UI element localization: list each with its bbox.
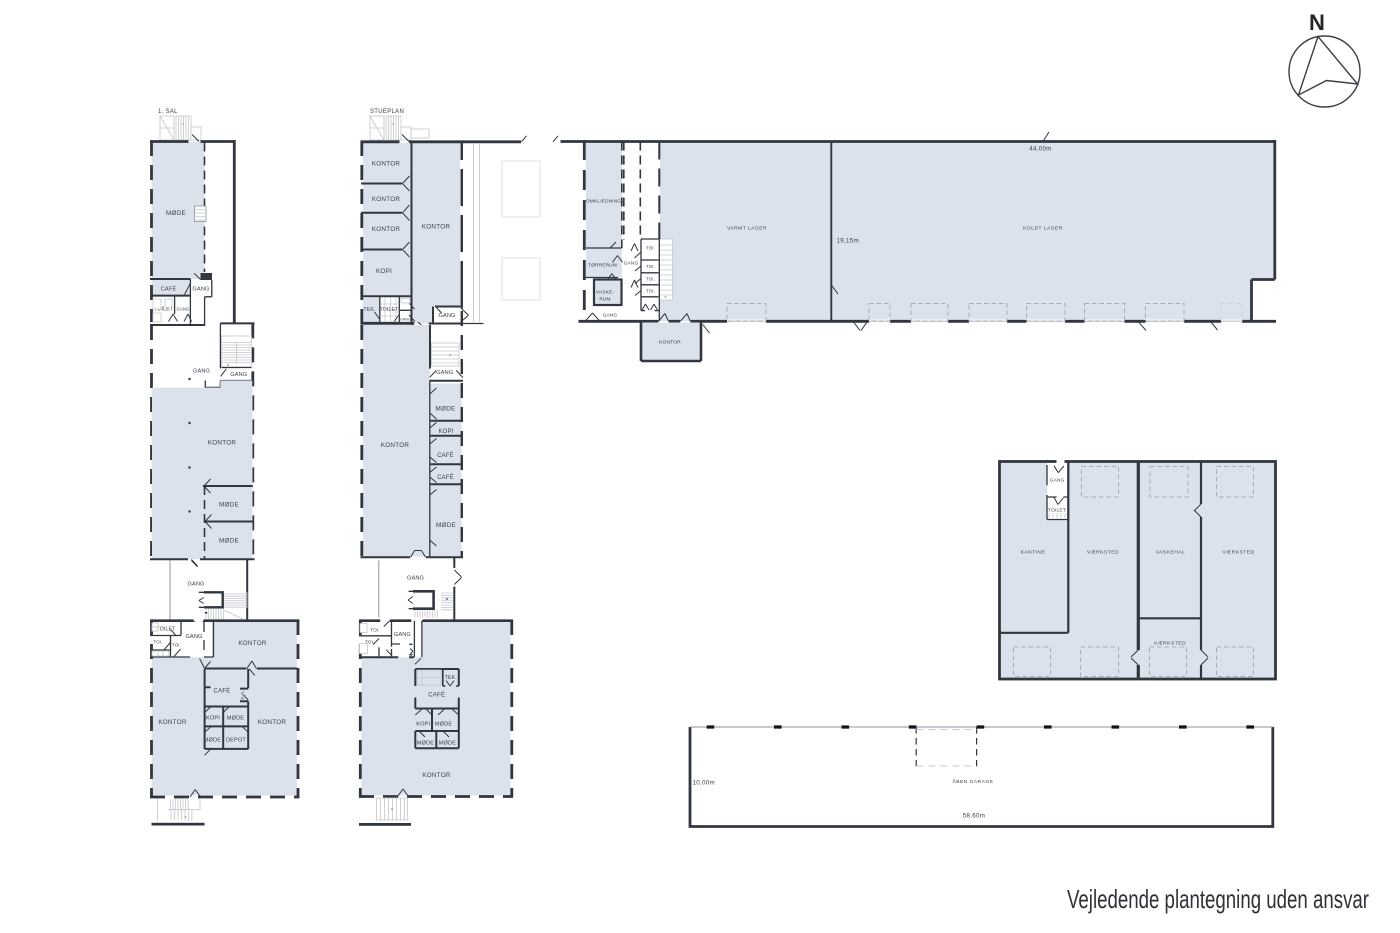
svg-text:KOPI: KOPI bbox=[416, 722, 430, 728]
svg-text:GANG: GANG bbox=[187, 582, 204, 588]
svg-text:GANG: GANG bbox=[407, 576, 424, 582]
svg-text:N: N bbox=[1309, 10, 1325, 35]
svg-text:KONTOR: KONTOR bbox=[422, 224, 451, 231]
svg-text:MØDE: MØDE bbox=[219, 538, 239, 545]
svg-text:GANG: GANG bbox=[603, 313, 618, 319]
svg-text:KONTOR: KONTOR bbox=[158, 719, 187, 726]
svg-text:GANG: GANG bbox=[1049, 478, 1064, 484]
svg-text:TOI.: TOI. bbox=[370, 628, 379, 633]
svg-text:MØDE: MØDE bbox=[227, 716, 245, 722]
svg-text:GANG: GANG bbox=[192, 287, 209, 293]
svg-text:MØDE: MØDE bbox=[417, 741, 435, 747]
svg-text:19,15m: 19,15m bbox=[837, 238, 859, 245]
svg-text:44,00m: 44,00m bbox=[1029, 146, 1051, 153]
svg-text:CAFÉ: CAFÉ bbox=[437, 474, 454, 481]
svg-text:VASKE-: VASKE- bbox=[596, 290, 614, 296]
svg-text:MØDE: MØDE bbox=[436, 522, 456, 529]
svg-text:VÆRKSTED: VÆRKSTED bbox=[1154, 641, 1186, 647]
svg-text:KONTOR: KONTOR bbox=[208, 440, 237, 447]
svg-text:KONTOR: KONTOR bbox=[381, 442, 410, 449]
svg-text:KANTINE: KANTINE bbox=[1021, 550, 1046, 556]
svg-text:GANG: GANG bbox=[438, 313, 455, 319]
svg-text:TOILET: TOILET bbox=[1048, 508, 1066, 514]
svg-text:TOI.: TOI. bbox=[646, 264, 655, 269]
svg-text:CAFÉ: CAFÉ bbox=[437, 452, 454, 459]
svg-text:CAFÉ: CAFÉ bbox=[161, 286, 177, 293]
svg-text:MØDE: MØDE bbox=[204, 737, 222, 743]
svg-text:KONTOR: KONTOR bbox=[659, 340, 681, 346]
svg-text:GANG: GANG bbox=[394, 632, 411, 638]
svg-text:STUEPLAN: STUEPLAN bbox=[370, 109, 404, 115]
svg-text:1. SAL: 1. SAL bbox=[158, 109, 178, 115]
svg-text:TOI.: TOI. bbox=[646, 277, 655, 282]
svg-text:VÆRKSTED: VÆRKSTED bbox=[1223, 550, 1255, 556]
svg-text:GANG: GANG bbox=[436, 370, 453, 376]
svg-text:MØDE: MØDE bbox=[166, 210, 186, 217]
svg-text:58,60m: 58,60m bbox=[963, 813, 985, 820]
svg-text:TOI.: TOI. bbox=[646, 289, 655, 294]
svg-text:KONTOR: KONTOR bbox=[372, 226, 401, 233]
svg-text:KONTOR: KONTOR bbox=[372, 196, 401, 203]
svg-text:KOLDT LAGER: KOLDT LAGER bbox=[1023, 226, 1063, 232]
svg-text:OMKLÆDNING: OMKLÆDNING bbox=[586, 199, 621, 205]
svg-text:RUM: RUM bbox=[599, 297, 610, 303]
svg-text:GANG: GANG bbox=[193, 369, 210, 375]
svg-text:TOILET: TOILET bbox=[157, 627, 177, 633]
svg-text:TEK.: TEK. bbox=[363, 307, 375, 313]
svg-text:KONTOR: KONTOR bbox=[372, 161, 401, 168]
svg-text:GANG: GANG bbox=[624, 261, 639, 267]
svg-text:TØRRERUM: TØRRERUM bbox=[588, 263, 617, 269]
svg-text:TOI.: TOI. bbox=[646, 246, 655, 251]
svg-text:DEPOT: DEPOT bbox=[226, 737, 246, 743]
svg-text:TOI.: TOI. bbox=[153, 640, 162, 645]
svg-text:KONTOR: KONTOR bbox=[238, 640, 267, 647]
svg-text:GANG: GANG bbox=[177, 307, 190, 312]
svg-text:CAFÉ: CAFÉ bbox=[428, 692, 445, 699]
svg-text:MØDE: MØDE bbox=[219, 502, 239, 509]
svg-text:GANG: GANG bbox=[230, 372, 247, 378]
svg-text:ÅBEN GARAGE: ÅBEN GARAGE bbox=[952, 778, 993, 785]
svg-text:KOPI: KOPI bbox=[376, 268, 392, 275]
svg-text:VARMT LAGER: VARMT LAGER bbox=[727, 226, 767, 232]
svg-text:TOI.: TOI. bbox=[172, 643, 181, 648]
svg-text:VÆRKSTED: VÆRKSTED bbox=[1087, 550, 1119, 556]
svg-text:MØDE: MØDE bbox=[436, 406, 456, 413]
svg-text:KONTOR: KONTOR bbox=[422, 772, 451, 779]
svg-text:GANG: GANG bbox=[400, 318, 411, 322]
svg-text:KONTOR: KONTOR bbox=[258, 719, 287, 726]
svg-text:MØDE: MØDE bbox=[439, 741, 457, 747]
svg-text:MØDE: MØDE bbox=[435, 722, 453, 728]
svg-text:VASKEHAL: VASKEHAL bbox=[1156, 550, 1185, 556]
svg-text:TEK.: TEK. bbox=[445, 675, 457, 681]
svg-text:CAFÉ: CAFÉ bbox=[213, 688, 230, 695]
svg-text:Vejledende plantegning uden an: Vejledende plantegning uden ansvar bbox=[1067, 884, 1369, 914]
svg-text:10,00m: 10,00m bbox=[693, 780, 715, 787]
svg-text:KOPI: KOPI bbox=[206, 716, 220, 722]
svg-text:KOPI: KOPI bbox=[439, 429, 454, 435]
svg-text:GANG: GANG bbox=[185, 634, 202, 640]
